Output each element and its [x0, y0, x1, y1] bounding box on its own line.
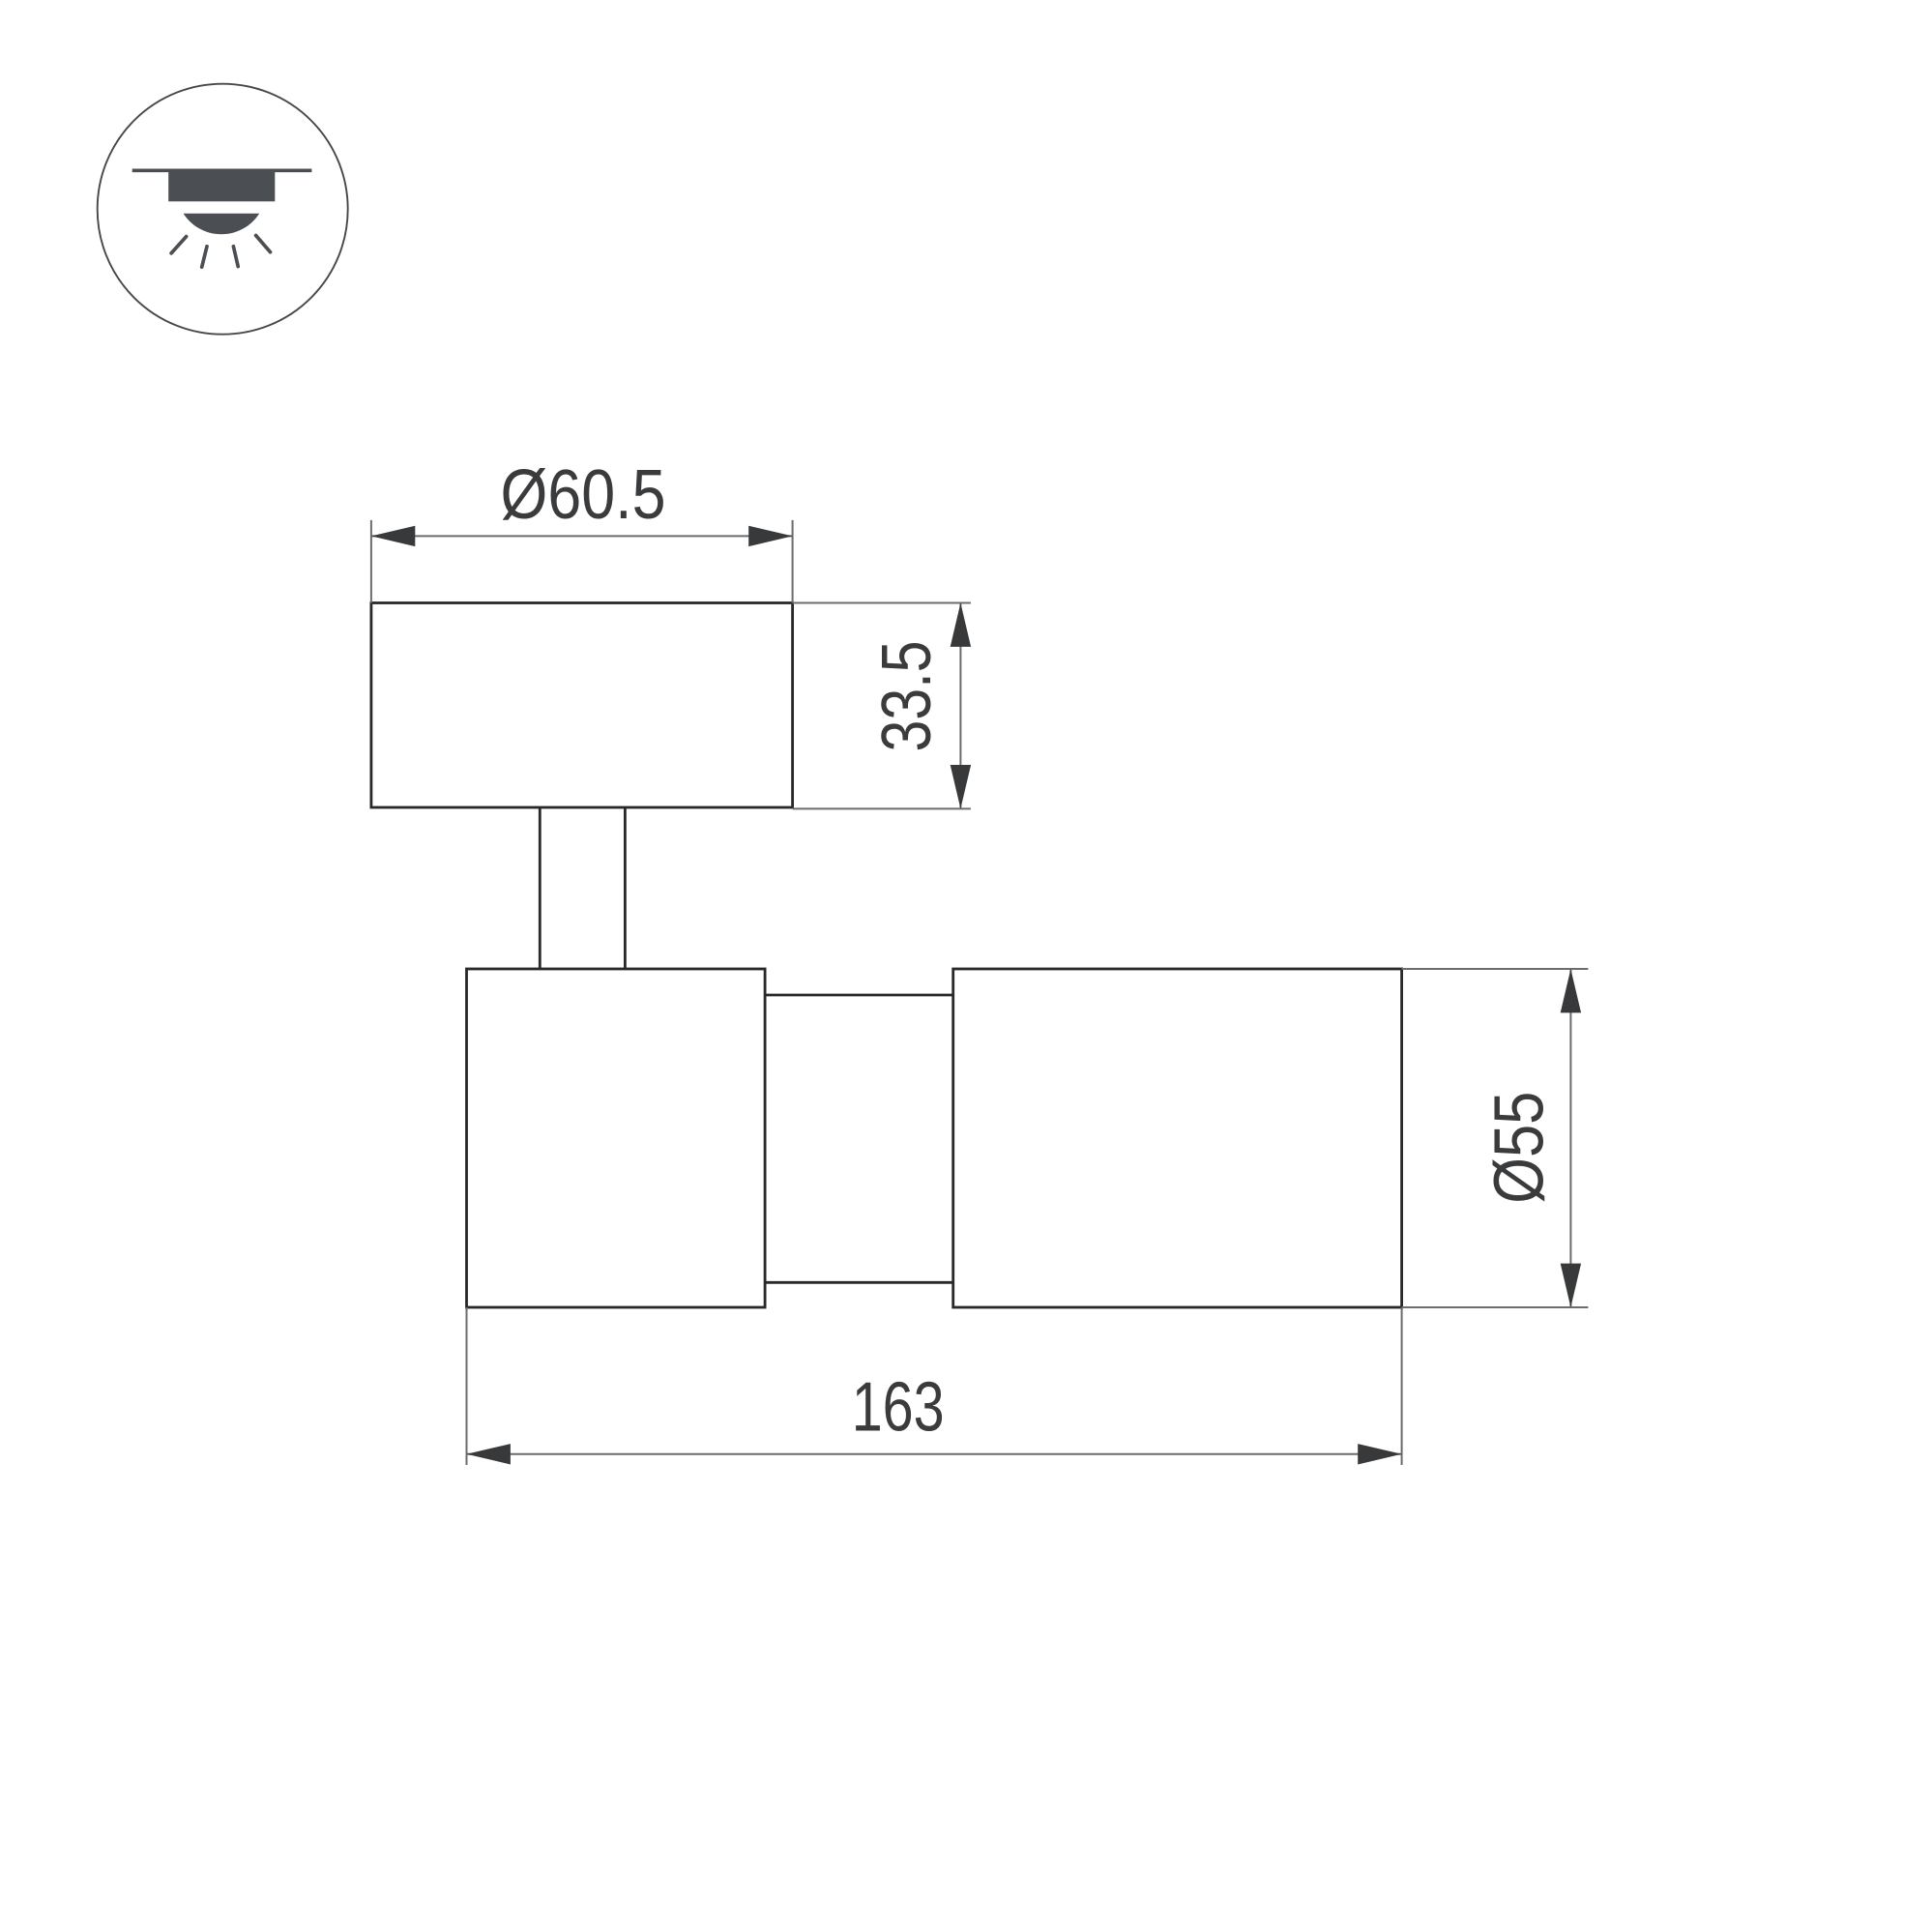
svg-text:Ø55: Ø55: [1480, 1092, 1558, 1204]
svg-text:163: 163: [852, 1369, 945, 1447]
svg-text:33.5: 33.5: [868, 641, 946, 752]
svg-text:Ø60.5: Ø60.5: [501, 456, 666, 534]
